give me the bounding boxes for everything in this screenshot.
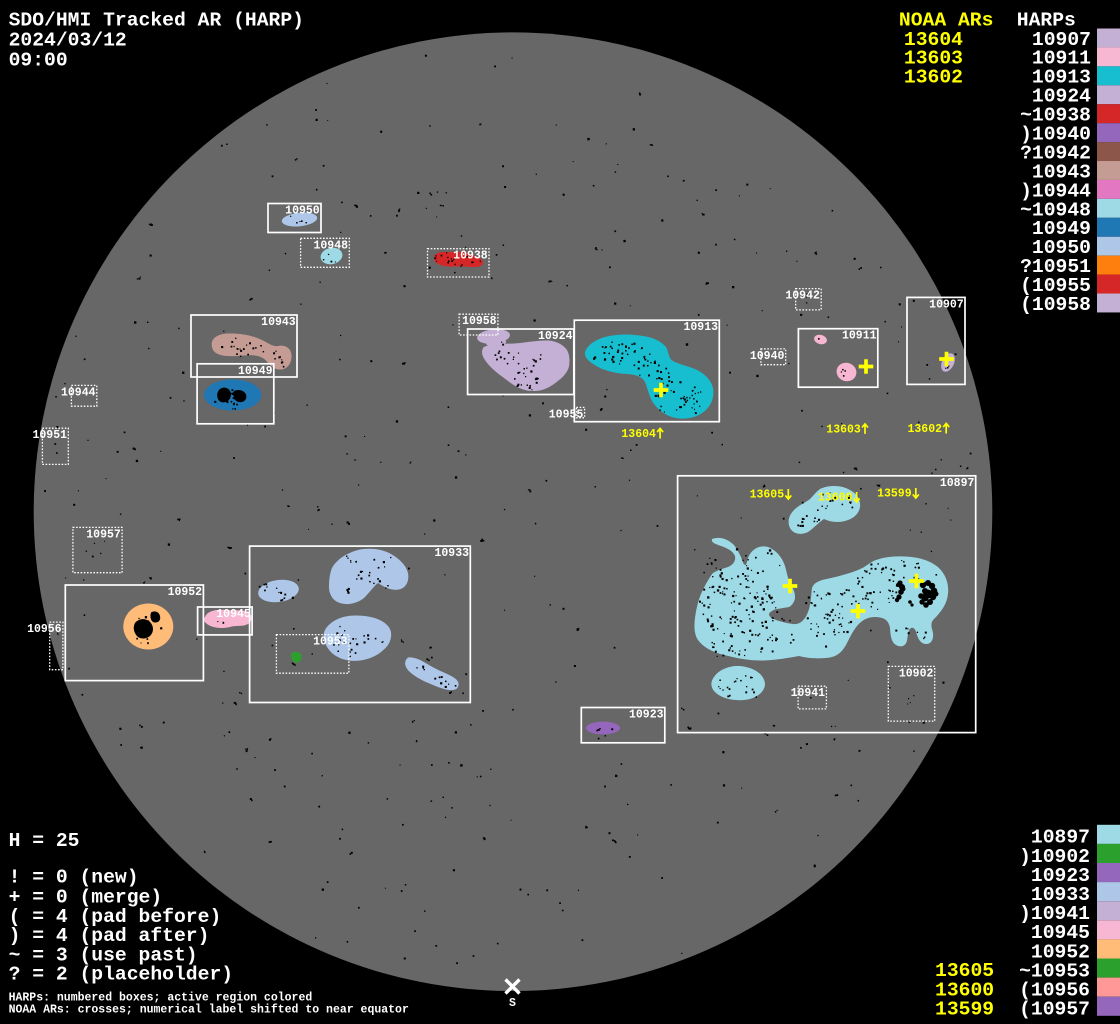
svg-text:10940: 10940	[750, 350, 785, 363]
svg-text:10944: 10944	[61, 386, 96, 399]
svg-text:10950: 10950	[285, 205, 320, 218]
svg-text:10897: 10897	[940, 477, 975, 490]
svg-text:10949: 10949	[238, 365, 273, 378]
svg-text:09:00: 09:00	[9, 50, 68, 72]
svg-text:13603: 13603	[826, 423, 861, 436]
svg-text:(10957: (10957	[1019, 999, 1090, 1021]
svg-text:2024/03/12: 2024/03/12	[9, 30, 127, 52]
svg-text:10945: 10945	[216, 608, 251, 621]
svg-text:13600: 13600	[818, 492, 853, 505]
svg-text:10958: 10958	[462, 315, 497, 328]
svg-text:SDO/HMI Tracked AR (HARP): SDO/HMI Tracked AR (HARP)	[9, 10, 304, 32]
svg-text:(10958: (10958	[1020, 294, 1091, 316]
svg-text:10942: 10942	[785, 290, 820, 303]
svg-text:10938: 10938	[453, 250, 488, 263]
svg-text:10952: 10952	[168, 586, 203, 599]
svg-text:10956: 10956	[27, 623, 62, 636]
svg-text:10955: 10955	[549, 408, 584, 421]
svg-text:10957: 10957	[86, 528, 121, 541]
svg-text:NOAA ARs: crosses; numerical l: NOAA ARs: crosses; numerical label shift…	[9, 1004, 409, 1017]
svg-text:! = 0 (new): ! = 0 (new)	[9, 866, 139, 888]
svg-text:10924: 10924	[538, 330, 573, 343]
svg-text:? = 2 (placeholder): ? = 2 (placeholder)	[9, 964, 233, 986]
svg-text:10923: 10923	[629, 709, 664, 722]
svg-text:H = 25: H = 25	[9, 830, 80, 852]
svg-text:13599: 13599	[935, 999, 994, 1021]
svg-text:S: S	[509, 997, 516, 1010]
svg-text:10951: 10951	[32, 429, 67, 442]
svg-text:10953: 10953	[313, 636, 348, 649]
svg-text:10943: 10943	[261, 316, 296, 329]
svg-text:10907: 10907	[929, 298, 964, 311]
svg-text:10902: 10902	[899, 667, 934, 680]
svg-text:13602: 13602	[904, 67, 963, 89]
svg-text:13605: 13605	[750, 489, 785, 502]
svg-text:13602: 13602	[908, 423, 943, 436]
svg-text:10948: 10948	[313, 239, 348, 252]
svg-text:10941: 10941	[791, 687, 826, 700]
svg-text:10911: 10911	[842, 330, 877, 343]
svg-text:10933: 10933	[434, 547, 469, 560]
svg-text:13599: 13599	[877, 488, 912, 501]
svg-text:10913: 10913	[683, 321, 718, 334]
svg-text:13604: 13604	[621, 428, 656, 441]
